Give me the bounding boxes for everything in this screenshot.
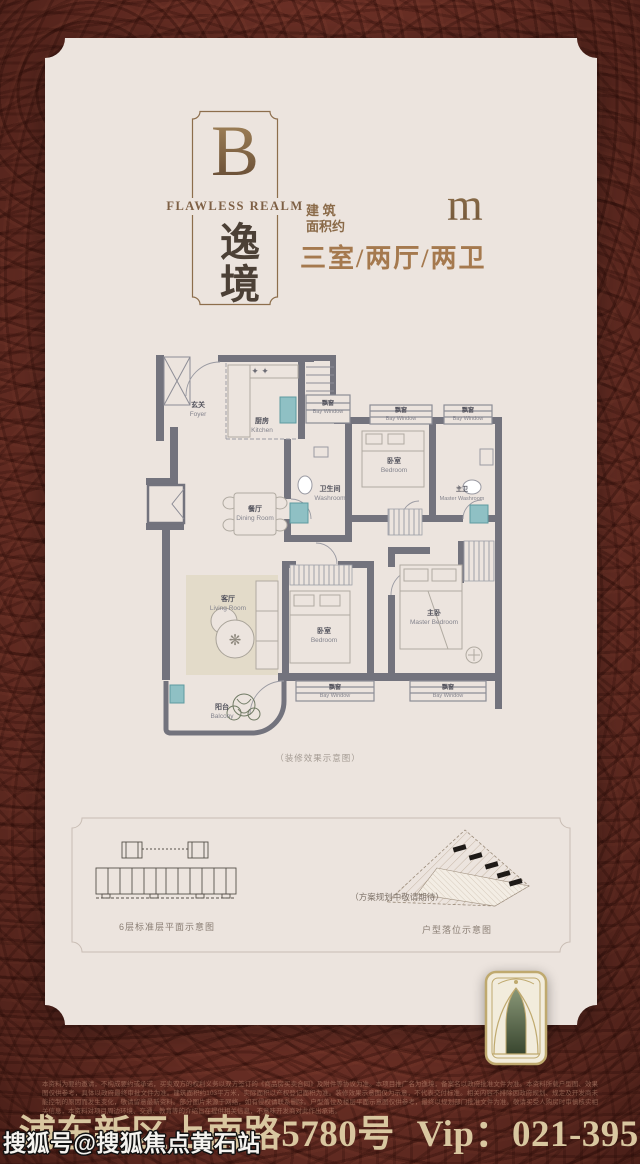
label-bedroom-bottom-zh: 卧室 [317, 626, 331, 635]
label-bay3-en: Bay Window [453, 416, 484, 422]
label-master-washroom-en: Master Washroom [440, 496, 485, 502]
area-exponent: 2 [483, 166, 494, 192]
svg-text:✦ ✦: ✦ ✦ [251, 366, 269, 376]
site-plan-note: （方案规划中敬请期待） [332, 891, 462, 903]
floor-plate-caption: 6层标准层平面示意图 [92, 920, 242, 933]
svg-text:❋: ❋ [229, 632, 242, 649]
label-dining-en: Dining Room [236, 515, 274, 522]
label-foyer-en: Foyer [190, 411, 207, 418]
gate-emblem-icon [480, 968, 552, 1068]
label-living-zh: 客厅 [220, 594, 235, 603]
floor-plan: ✦ ✦ ❋ [138, 333, 522, 767]
label-balcony-zh: 阳台 [215, 702, 229, 711]
label-bay2-zh: 飘窗 [394, 406, 407, 414]
label-bedroom-top-en: Bedroom [381, 467, 407, 474]
label-kitchen-en: Kitchen [251, 427, 273, 434]
label-bay4-zh: 飘窗 [328, 683, 341, 691]
label-washroom-en: Washroom [314, 495, 345, 502]
label-kitchen-zh: 厨房 [255, 416, 269, 425]
label-bay3-zh: 飘窗 [461, 406, 474, 414]
label-bedroom-top-zh: 卧室 [387, 456, 401, 465]
logo-subtitle-text: FLAWLESS REALM [161, 198, 308, 215]
label-living-en: Living Room [210, 605, 246, 612]
label-dining-zh: 餐厅 [247, 504, 262, 513]
label-bay1-zh: 飘窗 [321, 399, 334, 407]
label-bay4-en: Bay Window [320, 693, 351, 699]
plan-dining-furniture [223, 493, 287, 535]
label-bedroom-bottom-en: Bedroom [311, 637, 337, 644]
logo-name: 逸境 [214, 216, 302, 310]
area-label: 建 筑 面积约 [306, 203, 345, 235]
label-balcony-en: Balcony [210, 713, 234, 720]
label-master-bedroom-zh: 主卧 [427, 608, 441, 617]
label-master-washroom-zh: 主卫 [456, 485, 468, 493]
area-value: 103 [341, 147, 439, 237]
area-label-line2: 面积约 [306, 219, 345, 235]
label-bay5-zh: 飘窗 [441, 683, 454, 691]
floor-plate-diagram [92, 836, 242, 916]
area-figure: 103m2 [341, 147, 494, 239]
label-bay2-en: Bay Window [386, 416, 417, 422]
label-washroom-zh: 卫生间 [320, 484, 341, 493]
plan-living-furniture: ❋ [186, 575, 278, 675]
area-unit: m [447, 178, 483, 231]
site-plan-caption: 户型落位示意图 [372, 923, 542, 936]
label-bay1-en: Bay Window [313, 409, 344, 415]
watermark: 搜狐号@搜狐焦点黄石站 [3, 1124, 261, 1158]
label-master-bedroom-en: Master Bedroom [410, 619, 458, 626]
label-bay5-en: Bay Window [433, 693, 464, 699]
plan-caption: （装修效果示意图） [138, 752, 498, 764]
logo-letter: B [191, 112, 279, 190]
vip-phone: Vip：021-39527365 [417, 1103, 640, 1157]
area-label-line1: 建 筑 [306, 203, 345, 219]
label-foyer-zh: 玄关 [191, 400, 205, 409]
unit-layout: 三室/两厅/两卫 [300, 238, 510, 275]
